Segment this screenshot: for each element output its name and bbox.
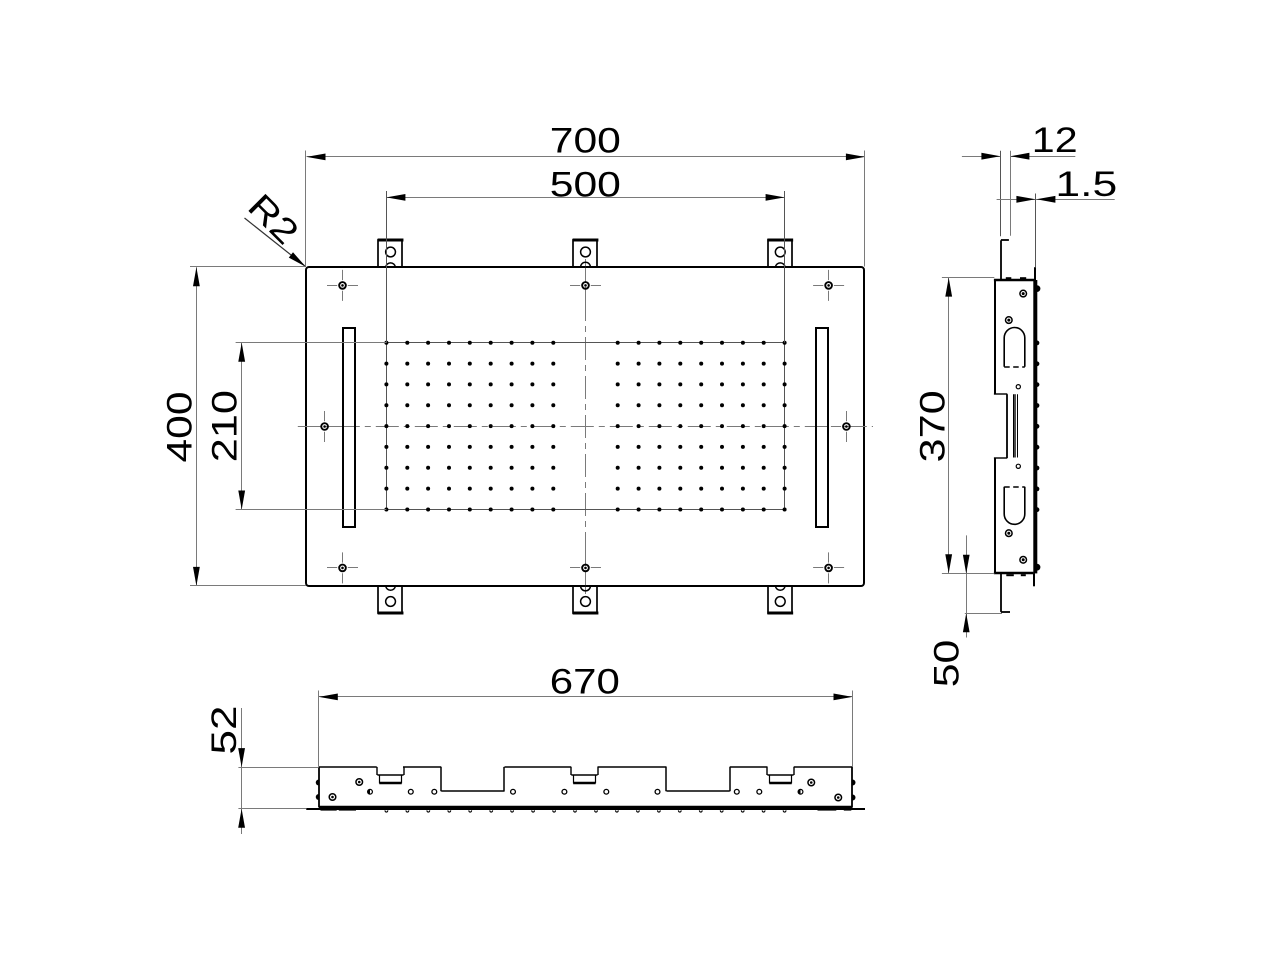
svg-text:370: 370 <box>914 390 953 462</box>
svg-text:50: 50 <box>928 640 967 688</box>
svg-text:400: 400 <box>161 392 200 463</box>
svg-text:500: 500 <box>550 166 621 205</box>
svg-text:12: 12 <box>1032 121 1078 160</box>
svg-text:1.5: 1.5 <box>1055 165 1117 203</box>
svg-text:52: 52 <box>205 706 244 755</box>
svg-text:700: 700 <box>550 122 621 161</box>
svg-text:670: 670 <box>550 663 620 702</box>
svg-text:210: 210 <box>205 390 244 462</box>
